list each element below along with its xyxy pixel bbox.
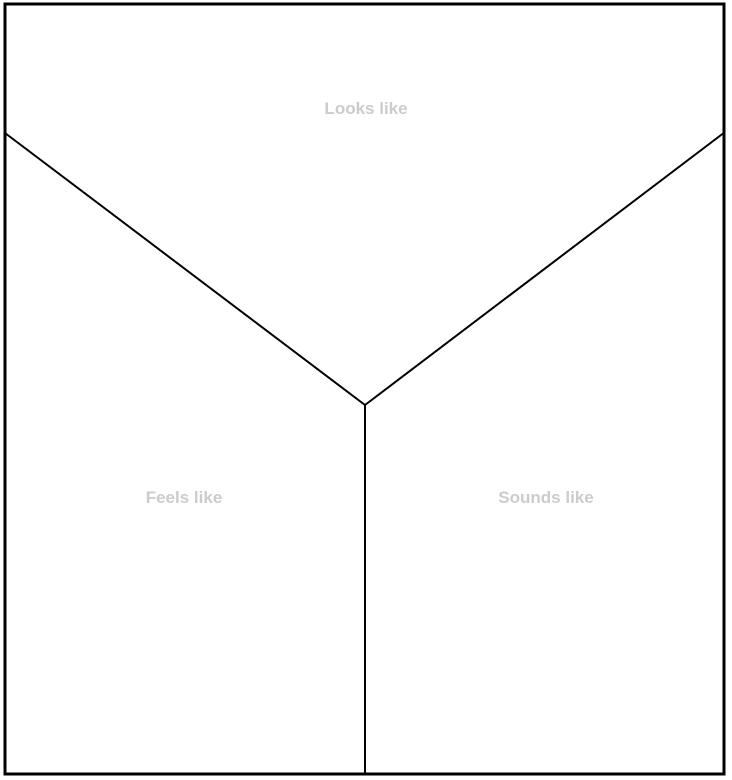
section-label-feels-like[interactable]: Feels like: [146, 488, 223, 508]
section-label-looks-like[interactable]: Looks like: [324, 99, 407, 119]
y-chart-canvas: Looks like Feels like Sounds like: [0, 0, 732, 780]
left-diagonal-line: [5, 133, 365, 405]
section-label-sounds-like[interactable]: Sounds like: [498, 488, 593, 508]
right-diagonal-line: [365, 132, 725, 405]
